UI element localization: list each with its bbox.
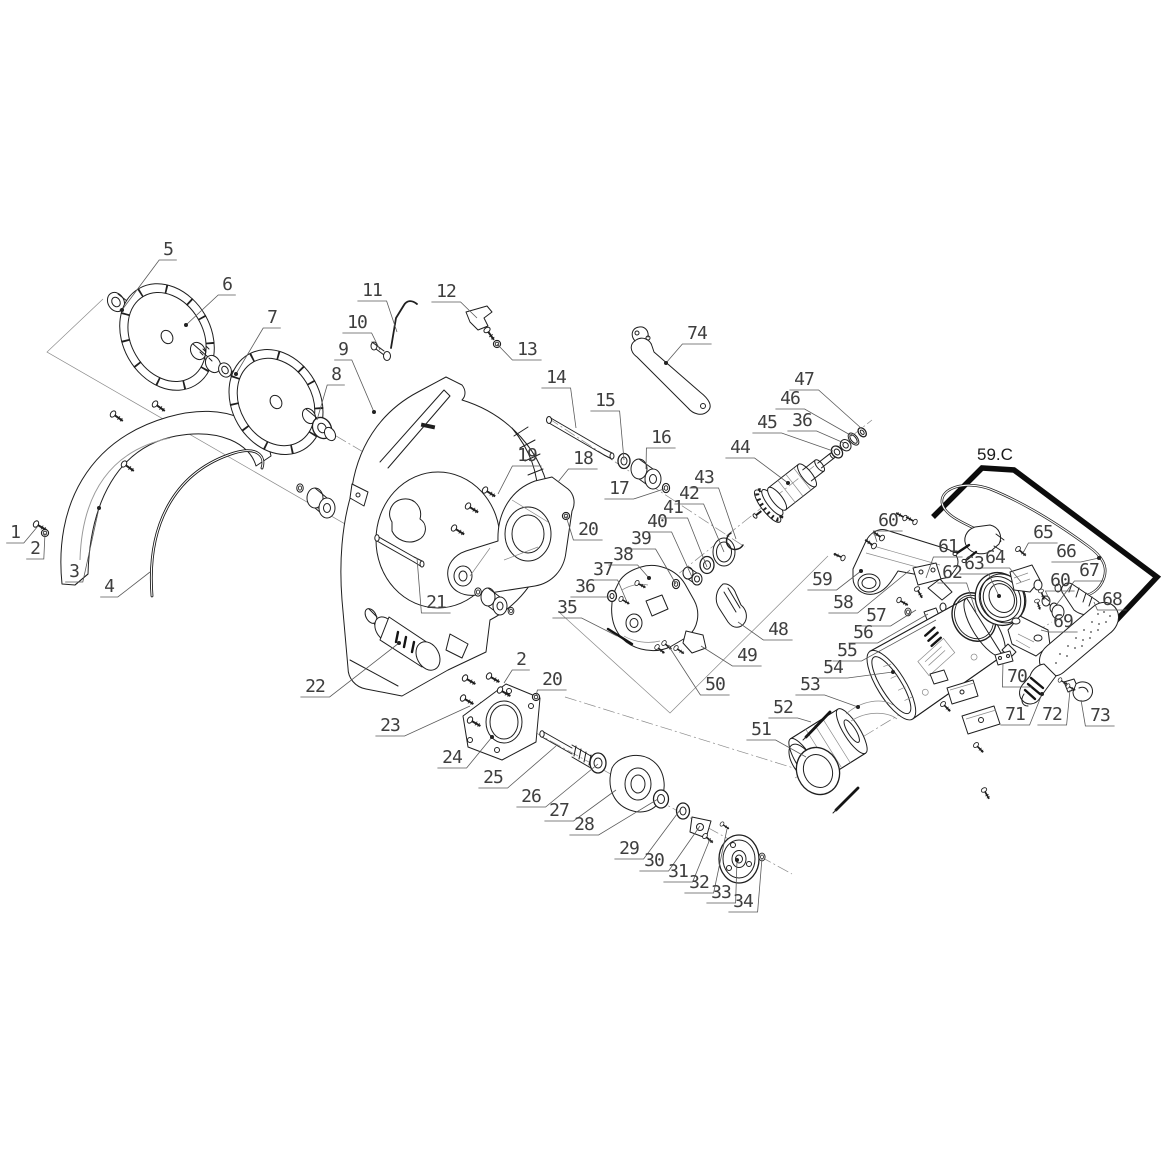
svg-text:52: 52 [773,697,793,718]
svg-text:10: 10 [347,312,367,333]
svg-text:47: 47 [794,369,814,390]
svg-text:25: 25 [483,767,503,788]
svg-text:53: 53 [800,674,820,695]
svg-text:4: 4 [104,576,114,597]
svg-text:62: 62 [942,562,962,583]
svg-text:67: 67 [1079,560,1099,581]
svg-text:14: 14 [546,367,566,388]
zone-label: 59.C [977,445,1013,464]
cutting-blade-1 [101,267,233,408]
svg-text:21: 21 [426,592,446,613]
svg-text:9: 9 [338,339,348,360]
svg-text:66: 66 [1056,541,1076,562]
svg-text:31: 31 [668,861,688,882]
svg-text:22: 22 [305,676,325,697]
svg-text:60: 60 [1050,570,1070,591]
svg-text:35: 35 [557,597,577,618]
svg-text:70: 70 [1007,666,1027,687]
part-callout-74-77: 74 [664,323,712,365]
depth-lever [371,342,391,361]
svg-text:3: 3 [69,561,79,582]
svg-text:29: 29 [619,838,639,859]
svg-text:44: 44 [730,437,750,458]
svg-text:60: 60 [878,510,898,531]
svg-text:65: 65 [1033,522,1053,543]
part-callout-20-19: 20 [566,516,603,540]
svg-text:7: 7 [267,307,277,328]
svg-text:28: 28 [574,814,594,835]
svg-text:37: 37 [593,559,613,580]
svg-text:19: 19 [517,445,537,466]
part-callout-73-76: 73 [1081,700,1115,726]
part-callout-49-51: 49 [701,645,762,666]
svg-text:45: 45 [757,412,777,433]
part-callout-46-48: 46 [775,388,852,436]
svg-text:8: 8 [331,364,341,385]
svg-text:2: 2 [516,649,526,670]
part-callout-4-3: 4 [100,572,150,597]
part-callout-44-45: 44 [725,437,790,485]
svg-text:26: 26 [521,786,541,807]
part-callout-18-17: 18 [558,448,598,482]
svg-text:61: 61 [938,536,958,557]
svg-text:15: 15 [595,390,615,411]
svg-text:48: 48 [768,619,788,640]
svg-text:72: 72 [1042,704,1062,725]
svg-text:17: 17 [609,478,629,499]
svg-text:46: 46 [780,388,800,409]
svg-text:57: 57 [866,605,886,626]
part-callout-50-52: 50 [668,645,730,695]
exploded-view-drawing: 1234567891011121314151617181920212223220… [0,0,1166,1166]
svg-text:38: 38 [613,544,633,565]
svg-text:73: 73 [1090,705,1110,726]
svg-text:59: 59 [812,569,832,590]
svg-text:30: 30 [644,850,664,871]
svg-text:1: 1 [10,522,20,543]
svg-text:12: 12 [436,281,456,302]
part-callout-20-24: 20 [536,669,567,696]
part-callout-13-12: 13 [497,339,542,360]
svg-text:36: 36 [792,410,812,431]
part-callout-16-15: 16 [646,427,676,469]
part-callout-65-67: 65 [1023,522,1058,553]
svg-text:20: 20 [542,669,562,690]
part-callout-2-23: 2 [504,649,530,683]
svg-text:49: 49 [737,645,757,666]
svg-text:71: 71 [1005,704,1025,725]
svg-text:20: 20 [578,519,598,540]
exploded-parts-diagram-page: 1234567891011121314151617181920212223220… [0,0,1166,1166]
svg-text:69: 69 [1053,611,1073,632]
svg-text:13: 13 [517,339,537,360]
svg-text:64: 64 [985,547,1005,568]
svg-text:50: 50 [705,674,725,695]
svg-text:68: 68 [1102,589,1122,610]
svg-text:58: 58 [833,592,853,613]
svg-text:43: 43 [694,467,714,488]
base-plate [459,672,540,760]
part-callout-23-22: 23 [375,706,470,736]
svg-text:36: 36 [575,576,595,597]
part-callout-53-55: 53 [795,674,860,709]
svg-text:74: 74 [687,323,707,344]
svg-text:51: 51 [751,719,771,740]
svg-text:5: 5 [163,239,173,260]
svg-text:33: 33 [711,882,731,903]
svg-text:2: 2 [30,538,40,559]
svg-text:32: 32 [689,872,709,893]
svg-text:63: 63 [964,553,984,574]
guard-band [151,451,263,596]
svg-text:16: 16 [651,427,671,448]
svg-text:6: 6 [222,274,232,295]
svg-text:11: 11 [362,280,382,301]
svg-text:34: 34 [733,891,753,912]
terminal-block [1010,545,1042,592]
part-callout-35-36: 35 [552,597,617,636]
svg-text:27: 27 [549,800,569,821]
svg-text:24: 24 [442,747,462,768]
part-callout-52-54: 52 [768,697,811,722]
svg-text:18: 18 [573,448,593,469]
svg-text:23: 23 [380,715,400,736]
